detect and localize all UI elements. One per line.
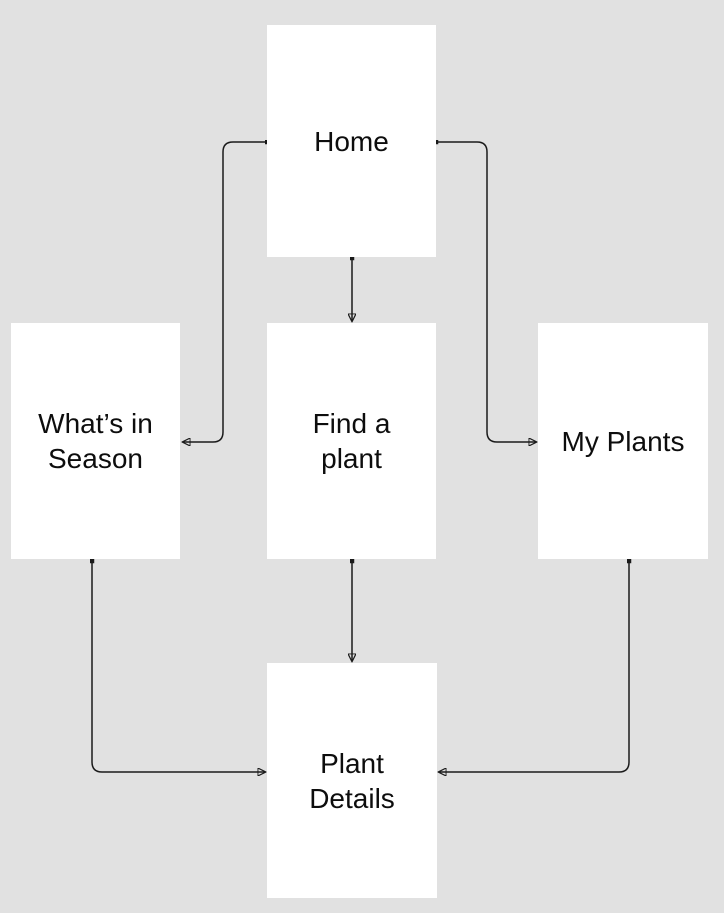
edge-home-to-my-plants[interactable] (436, 142, 536, 442)
node-whats-in-season[interactable]: What’s in Season (11, 323, 180, 559)
node-label: What’s in Season (38, 406, 153, 476)
edge-my-plants-to-plant-details[interactable] (439, 561, 629, 772)
edge-whats-in-season-to-plant-details[interactable] (92, 561, 265, 772)
node-my-plants[interactable]: My Plants (538, 323, 708, 559)
node-label: Plant Details (309, 746, 395, 816)
node-plant-details[interactable]: Plant Details (267, 663, 437, 898)
node-label: My Plants (562, 424, 685, 459)
node-home[interactable]: Home (267, 25, 436, 257)
edge-home-to-whats-in-season[interactable] (183, 142, 267, 442)
node-find-a-plant[interactable]: Find a plant (267, 323, 436, 559)
node-label: Find a plant (313, 406, 391, 476)
flow-diagram-canvas: Home What’s in Season Find a plant My Pl… (0, 0, 724, 913)
node-label: Home (314, 124, 389, 159)
